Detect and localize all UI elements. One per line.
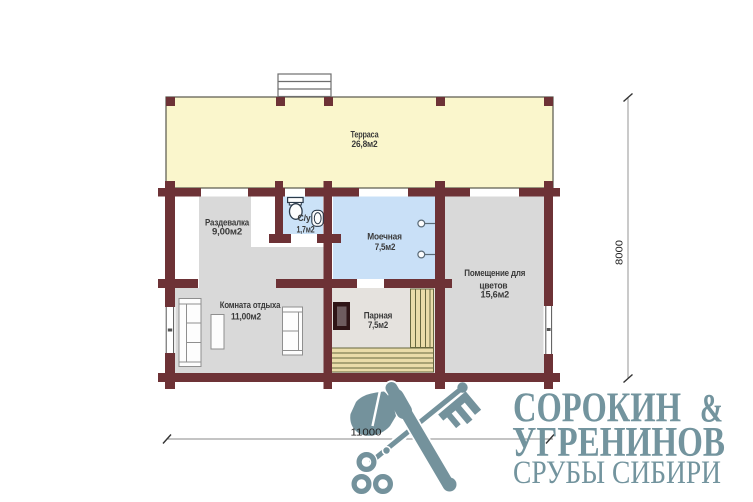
svg-text:Помещение для: Помещение для: [464, 268, 525, 279]
svg-text:С/у: С/у: [298, 213, 311, 223]
svg-text:1,7м2: 1,7м2: [297, 224, 315, 234]
svg-text:9,00м2: 9,00м2: [212, 227, 242, 238]
svg-text:СРУБЫ СИБИРИ: СРУБЫ СИБИРИ: [513, 455, 721, 491]
svg-text:Комната отдыха: Комната отдыха: [220, 300, 281, 311]
svg-text:15,6м2: 15,6м2: [481, 290, 510, 301]
svg-text:8000: 8000: [614, 240, 626, 265]
svg-text:11,00м2: 11,00м2: [231, 311, 261, 322]
svg-text:7,5м2: 7,5м2: [375, 242, 396, 253]
svg-text:26,8м2: 26,8м2: [352, 139, 378, 150]
svg-text:7,5м2: 7,5м2: [368, 320, 388, 331]
svg-text:11000: 11000: [351, 427, 382, 439]
